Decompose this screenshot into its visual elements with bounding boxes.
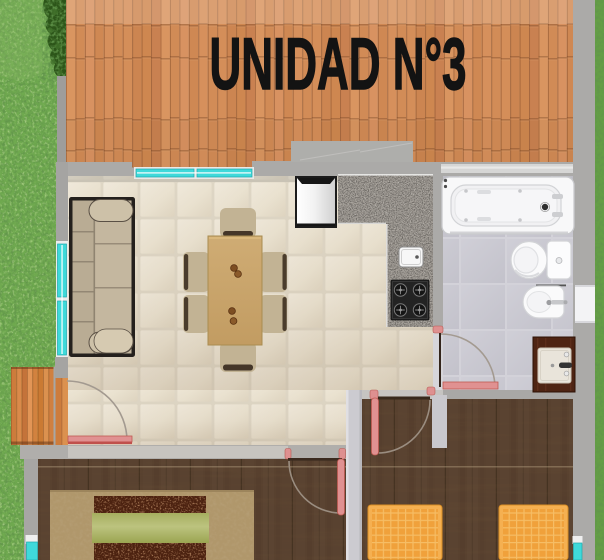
svg-text:UNIDAD N°3: UNIDAD N°3	[210, 24, 467, 105]
